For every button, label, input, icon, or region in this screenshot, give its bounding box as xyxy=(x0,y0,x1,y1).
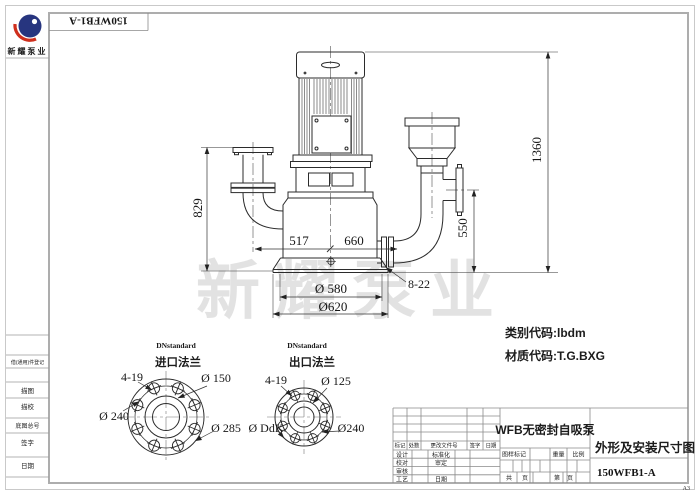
dim-base-bolt-circle: Ø 580 xyxy=(315,281,347,296)
role-review: 审核 xyxy=(396,467,408,475)
inlet-flange-outer-dia: Ø 285 xyxy=(211,421,241,435)
titleblock-weight-label: 重量 xyxy=(552,451,564,459)
company-logo: 新耀泵业 xyxy=(6,15,49,59)
outlet-flange-holes: 4-19 xyxy=(265,373,287,387)
inlet-flange-title: 进口法兰 xyxy=(155,355,201,369)
titleblock-drawing-number: 150WFB1-A xyxy=(597,467,656,479)
outlet-flange-outer-dia: Ø DdK xyxy=(249,421,284,435)
inlet-piping xyxy=(231,148,283,230)
role-design: 设计 xyxy=(396,451,408,459)
sheet-format-label: A3 xyxy=(683,486,690,492)
dim-overall-height: 1360 xyxy=(529,137,544,163)
titleblock-number-label: 第 xyxy=(554,474,560,482)
motor-base-flange xyxy=(293,155,372,162)
dim-base-holes: 8-22 xyxy=(408,277,430,291)
dim-outlet-offset: 660 xyxy=(344,233,364,248)
role-proofread: 校对 xyxy=(396,459,408,467)
left-margin-blocks: 借(通用)件登记 描图 描校 底图总号 签字 日期 xyxy=(6,335,49,477)
note-material-code: 材质代码:T.G.BXG xyxy=(504,348,605,363)
engineering-drawing-sheet: 新耀泵业 150WFB1-A 新耀泵业 借(通用)件登记 描图 描校 底图总号 … xyxy=(0,0,700,495)
titleblock-sheet-title: 外形及安装尺寸图 xyxy=(594,440,695,455)
drawing-canvas: 新耀泵业 150WFB1-A 新耀泵业 借(通用)件登记 描图 描校 底图总号 … xyxy=(0,0,700,495)
margin-date: 日期 xyxy=(21,462,35,470)
title-block: WFB无密封自吸泵 外形及安装尺寸图 150WFB1-A 标记 处数 更改文件号… xyxy=(393,408,695,492)
role-approve: 审定 xyxy=(435,459,447,467)
watermark-text: 新耀泵业 xyxy=(196,256,508,327)
outlet-flange-bolt-circle: Ø240 xyxy=(338,421,365,435)
corner-drawing-number: 150WFB1-A xyxy=(69,15,128,27)
role-standardization: 标准化 xyxy=(432,451,450,459)
dim-inlet-height: 829 xyxy=(190,198,205,218)
titleblock-page-label: 页 xyxy=(567,475,573,482)
inlet-flange-bolt-circle: Ø 240 xyxy=(99,409,129,423)
role-process: 工艺 xyxy=(396,475,408,483)
rev-col-count: 处数 xyxy=(409,442,420,450)
outlet-piping xyxy=(377,118,463,267)
titleblock-stamp-label: 图样标记 xyxy=(502,451,526,459)
titleblock-pages-label: 页 xyxy=(522,475,528,482)
outlet-flange-inner-dia: Ø 125 xyxy=(321,374,351,388)
outlet-flange-standard: DNstandard xyxy=(287,341,327,350)
rev-col-change-doc: 更改文件号 xyxy=(431,442,459,450)
margin-tracing-check: 描校 xyxy=(21,402,35,411)
note-category-code: 类别代码:lbdm xyxy=(505,325,586,340)
titleblock-product-name: WFB无密封自吸泵 xyxy=(495,422,594,437)
dim-inlet-offset: 517 xyxy=(289,233,309,248)
margin-signature: 签字 xyxy=(21,438,35,447)
dim-outlet-height: 550 xyxy=(455,218,470,238)
titleblock-total-label: 共 xyxy=(506,474,512,482)
pump-motor xyxy=(293,52,372,162)
outlet-flange-view: DNstandard 出口法兰 4-19 Ø 125 Ø DdK Ø240 xyxy=(249,341,365,454)
margin-borrow-register: 借(通用)件登记 xyxy=(11,359,44,366)
inlet-flange-holes: 4-19 xyxy=(121,370,143,384)
dim-base-diameter: Ø620 xyxy=(319,299,348,314)
code-notes: 类别代码:lbdm 材质代码:T.G.BXG xyxy=(504,325,605,363)
titleblock-scale-label: 比例 xyxy=(572,451,584,459)
rev-col-signature: 签字 xyxy=(470,442,481,450)
inlet-flange-standard: DNstandard xyxy=(156,341,196,350)
inlet-elbow xyxy=(243,193,283,229)
margin-base-drawing-no: 底图总号 xyxy=(15,422,39,430)
rev-col-date: 日期 xyxy=(486,443,497,450)
inlet-flange-inner-dia: Ø 150 xyxy=(201,371,231,385)
pump-centerlines xyxy=(253,46,481,267)
logo-mark-blue xyxy=(19,15,42,38)
inlet-flange-view: DNstandard 进口法兰 4-19 Ø 150 Ø 240 Ø 285 xyxy=(99,341,241,463)
role-date: 日期 xyxy=(435,475,447,483)
corner-number-box: 150WFB1-A xyxy=(49,13,148,31)
margin-tracing: 描图 xyxy=(21,386,34,395)
rev-col-mark: 标记 xyxy=(395,442,406,450)
outlet-flange-title: 出口法兰 xyxy=(289,355,335,369)
logo-mark-dot xyxy=(32,19,37,24)
logo-company-name: 新耀泵业 xyxy=(8,46,48,56)
